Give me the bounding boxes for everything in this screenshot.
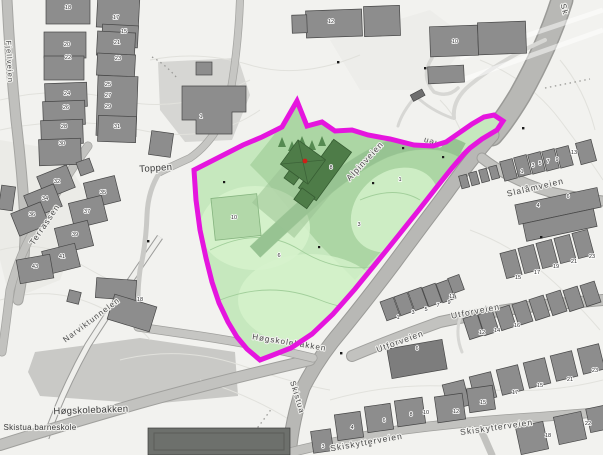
house-number: 1 xyxy=(398,177,401,183)
house-number: 22 xyxy=(65,55,71,61)
house-number: 12 xyxy=(453,409,459,415)
house-number: 4 xyxy=(536,203,539,209)
house-number: 31 xyxy=(114,124,120,130)
house-number: 13 xyxy=(571,150,577,156)
house-number: 28 xyxy=(61,124,67,130)
house-number: 18 xyxy=(65,5,71,11)
house-number: 6 xyxy=(415,346,418,352)
house-number: 7 xyxy=(436,303,439,309)
house-number: 21 xyxy=(567,377,573,383)
house-number: 37 xyxy=(84,209,90,215)
house-number: 8 xyxy=(409,412,412,418)
house-number: 36 xyxy=(29,212,35,218)
house-number: 5 xyxy=(424,307,427,313)
house-number: 21 xyxy=(114,40,120,46)
house-number: 32 xyxy=(54,179,60,185)
house-number: 26 xyxy=(63,105,69,111)
house-number: 1 xyxy=(520,169,523,175)
house-number: 24 xyxy=(64,91,70,97)
map-canvas[interactable]: FjellveienToppenTerrassenNarviktunnelenH… xyxy=(0,0,603,455)
house-number: 14 xyxy=(494,328,500,334)
house-number: 27 xyxy=(105,93,111,99)
position-marker xyxy=(303,159,308,164)
house-number: 9 xyxy=(555,157,558,163)
house-number: 39 xyxy=(72,232,78,238)
house-number: 10 xyxy=(231,215,237,221)
house-number: 5 xyxy=(538,161,541,167)
house-number: 3 xyxy=(321,444,324,450)
house-number: 9 xyxy=(447,300,450,306)
house-number: 17 xyxy=(113,15,119,21)
toppen-label: Toppen xyxy=(139,162,173,175)
house-number: 10 xyxy=(452,39,458,45)
house-number: 43 xyxy=(32,264,38,270)
skistua-barneskole-label: Skistua barneskole xyxy=(4,423,77,432)
house-number: 15 xyxy=(515,275,521,281)
house-number: 6 xyxy=(382,418,385,424)
house-number: 7 xyxy=(546,159,549,165)
house-number: 1 xyxy=(199,114,202,120)
house-number: 18 xyxy=(137,297,143,303)
house-number: 12 xyxy=(479,330,485,336)
house-number: 23 xyxy=(592,368,598,374)
house-number: 3 xyxy=(531,163,534,169)
house-number: 35 xyxy=(100,190,106,196)
house-number: 34 xyxy=(42,196,48,202)
house-number: 23 xyxy=(589,254,595,260)
house-number: 12 xyxy=(328,19,334,25)
house-number: 15 xyxy=(480,400,486,406)
house-number: 20 xyxy=(64,42,70,48)
house-number: 15 xyxy=(537,383,543,389)
house-number: 41 xyxy=(59,254,65,260)
house-number: 25 xyxy=(105,82,111,88)
house-number: 8 xyxy=(329,165,332,171)
house-number: 18 xyxy=(545,433,551,439)
house-number: 17 xyxy=(512,390,518,396)
house-number: 22 xyxy=(585,421,591,427)
house-number: 10 xyxy=(423,410,429,416)
house-number: 11 xyxy=(449,294,455,300)
house-number: 6 xyxy=(566,194,569,200)
house-number: 30 xyxy=(59,141,65,147)
house-number: 17 xyxy=(534,270,540,276)
house-number: 19 xyxy=(553,264,559,270)
house-number: 15 xyxy=(121,29,127,35)
house-number: 21 xyxy=(571,259,577,265)
house-number: 23 xyxy=(115,56,121,62)
house-number: 6 xyxy=(277,253,280,259)
house-number: 3 xyxy=(357,222,360,228)
house-number: 29 xyxy=(105,104,111,110)
house-number: 16 xyxy=(514,323,520,329)
house-number: 1 xyxy=(396,315,399,321)
house-number: 4 xyxy=(350,425,353,431)
house-number: 3 xyxy=(411,310,414,316)
